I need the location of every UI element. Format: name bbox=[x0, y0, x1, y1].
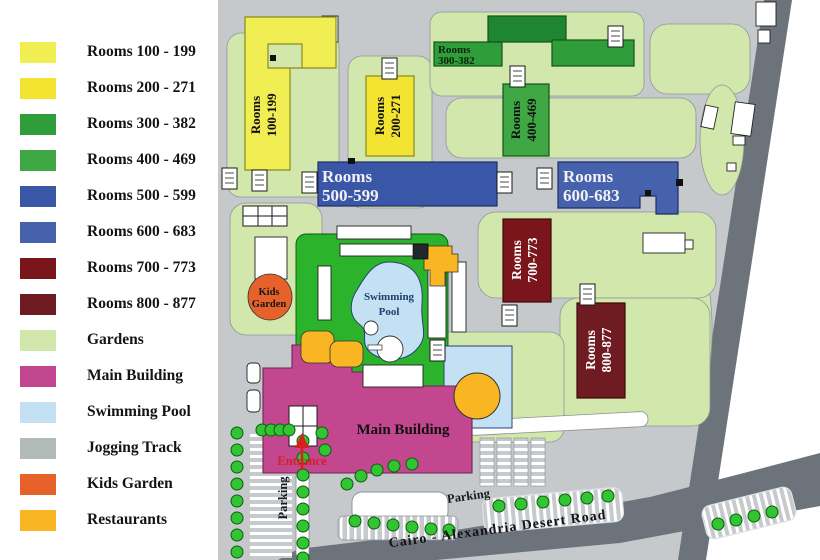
legend-swatch bbox=[20, 366, 56, 387]
label-rooms-700-773: Rooms bbox=[509, 240, 524, 280]
stairs-structure bbox=[430, 340, 445, 361]
tree-icon bbox=[231, 512, 243, 524]
legend-item-label: Rooms 300 - 382 bbox=[87, 115, 196, 133]
label-rooms-800-877: Rooms bbox=[583, 330, 598, 370]
stairs-structure bbox=[537, 168, 552, 189]
label-rooms-500-599: 500-599 bbox=[322, 186, 379, 205]
label-rooms-700-773: 700-773 bbox=[525, 237, 540, 282]
tree-icon bbox=[316, 427, 328, 439]
label-rooms-600-683: 600-683 bbox=[563, 186, 620, 205]
resort-map: Rooms 100-199 Rooms 200-271 Rooms 300-38… bbox=[215, 0, 820, 560]
tree-icon bbox=[297, 537, 309, 549]
legend-item: Gardens bbox=[20, 322, 220, 358]
stairs-structure bbox=[302, 172, 317, 193]
legend-swatch bbox=[20, 474, 56, 495]
legend: Rooms 100 - 199Rooms 200 - 271Rooms 300 … bbox=[20, 34, 220, 538]
legend-swatch bbox=[20, 510, 56, 531]
label-entrance: Entrance bbox=[277, 454, 327, 468]
label-swimming-pool: Pool bbox=[379, 306, 400, 318]
tree-icon bbox=[231, 546, 243, 558]
tennis-court bbox=[243, 206, 287, 226]
legend-item: Rooms 100 - 199 bbox=[20, 34, 220, 70]
legend-item: Main Building bbox=[20, 358, 220, 394]
tree-icon bbox=[559, 494, 571, 506]
tree-icon bbox=[297, 469, 309, 481]
tree-icon bbox=[406, 458, 418, 470]
tree-icon bbox=[368, 517, 380, 529]
tree-icon bbox=[297, 486, 309, 498]
stairs-structure bbox=[502, 305, 517, 326]
tree-icon bbox=[748, 510, 760, 522]
legend-item: Rooms 600 - 683 bbox=[20, 214, 220, 250]
label-rooms-600-683: Rooms bbox=[563, 167, 613, 186]
label-rooms-400-469: 400-469 bbox=[524, 98, 539, 142]
stairs-structure bbox=[252, 170, 267, 191]
legend-item: Swimming Pool bbox=[20, 394, 220, 430]
tree-icon bbox=[388, 460, 400, 472]
legend-item: Rooms 400 - 469 bbox=[20, 142, 220, 178]
tree-icon bbox=[231, 529, 243, 541]
legend-item-label: Rooms 800 - 877 bbox=[87, 295, 196, 313]
legend-item: Rooms 300 - 382 bbox=[20, 106, 220, 142]
tree-icon bbox=[297, 503, 309, 515]
legend-item-label: Rooms 400 - 469 bbox=[87, 151, 196, 169]
legend-swatch bbox=[20, 222, 56, 243]
legend-item: Rooms 700 - 773 bbox=[20, 250, 220, 286]
building-rooms-300-382-north bbox=[488, 16, 566, 42]
tree-icon bbox=[231, 444, 243, 456]
tree-icon bbox=[231, 478, 243, 490]
tree-icon bbox=[515, 498, 527, 510]
legend-item-label: Main Building bbox=[87, 367, 183, 385]
legend-swatch bbox=[20, 42, 56, 63]
tree-icon bbox=[712, 518, 724, 530]
label-rooms-800-877: 800-877 bbox=[599, 327, 614, 372]
tree-icon bbox=[231, 461, 243, 473]
tree-icon bbox=[730, 514, 742, 526]
tree-icon bbox=[387, 519, 399, 531]
stairs-structure bbox=[580, 284, 595, 305]
label-parking-left: Parking bbox=[276, 476, 290, 520]
tree-icon bbox=[406, 521, 418, 533]
legend-item-label: Rooms 200 - 271 bbox=[87, 79, 196, 97]
tree-icon bbox=[297, 520, 309, 532]
resort-map-page: Rooms 100 - 199Rooms 200 - 271Rooms 300 … bbox=[0, 0, 820, 560]
label-rooms-200-271: Rooms bbox=[372, 97, 387, 135]
tree-icon bbox=[341, 478, 353, 490]
stairs-structure bbox=[222, 168, 237, 189]
label-kids-garden: Kids bbox=[258, 287, 279, 298]
tree-icon bbox=[766, 506, 778, 518]
legend-swatch bbox=[20, 78, 56, 99]
label-swimming-pool: Swimming bbox=[364, 291, 415, 303]
jacuzzi-icon bbox=[364, 321, 378, 335]
tree-icon bbox=[297, 552, 309, 560]
label-rooms-100-199: 100-199 bbox=[264, 93, 279, 137]
legend-item: Rooms 800 - 877 bbox=[20, 286, 220, 322]
tree-icon bbox=[537, 496, 549, 508]
legend-swatch bbox=[20, 114, 56, 135]
tree-icon bbox=[355, 470, 367, 482]
tree-icon bbox=[581, 492, 593, 504]
legend-swatch bbox=[20, 402, 56, 423]
legend-item-label: Jogging Track bbox=[87, 439, 182, 457]
legend-item: Rooms 200 - 271 bbox=[20, 70, 220, 106]
deck-structure-south bbox=[363, 365, 423, 387]
legend-item: Rooms 500 - 599 bbox=[20, 178, 220, 214]
tree-icon bbox=[602, 490, 614, 502]
label-rooms-100-199: Rooms bbox=[248, 96, 263, 134]
round-restaurant bbox=[454, 373, 500, 419]
label-rooms-400-469: Rooms bbox=[508, 101, 523, 139]
legend-item-label: Rooms 600 - 683 bbox=[87, 223, 196, 241]
legend-swatch bbox=[20, 330, 56, 351]
label-rooms-200-271: 200-271 bbox=[388, 94, 403, 137]
label-rooms-300-382: 300-382 bbox=[438, 55, 475, 67]
legend-swatch bbox=[20, 150, 56, 171]
label-kids-garden: Garden bbox=[252, 299, 287, 310]
stairs-structure bbox=[608, 26, 623, 47]
label-main-building: Main Building bbox=[357, 422, 450, 438]
stairs-structure bbox=[510, 66, 525, 87]
stairs-structure bbox=[382, 58, 397, 79]
legend-swatch bbox=[20, 186, 56, 207]
legend-item-label: Rooms 100 - 199 bbox=[87, 43, 196, 61]
legend-swatch bbox=[20, 294, 56, 315]
legend-swatch bbox=[20, 258, 56, 279]
tree-icon bbox=[283, 424, 295, 436]
legend-item-label: Gardens bbox=[87, 331, 144, 349]
tree-icon bbox=[493, 500, 505, 512]
legend-item-label: Kids Garden bbox=[87, 475, 173, 493]
legend-item: Restaurants bbox=[20, 502, 220, 538]
stairs-structure bbox=[497, 172, 512, 193]
legend-item: Jogging Track bbox=[20, 430, 220, 466]
label-rooms-500-599: Rooms bbox=[322, 167, 372, 186]
tree-icon bbox=[371, 464, 383, 476]
legend-item-label: Restaurants bbox=[87, 511, 167, 529]
legend-item-label: Rooms 700 - 773 bbox=[87, 259, 196, 277]
legend-item: Kids Garden bbox=[20, 466, 220, 502]
tree-icon bbox=[231, 495, 243, 507]
tree-icon bbox=[349, 515, 361, 527]
legend-item-label: Swimming Pool bbox=[87, 403, 191, 421]
legend-item-label: Rooms 500 - 599 bbox=[87, 187, 196, 205]
tree-icon bbox=[231, 427, 243, 439]
legend-swatch bbox=[20, 438, 56, 459]
dark-structure bbox=[413, 244, 428, 259]
